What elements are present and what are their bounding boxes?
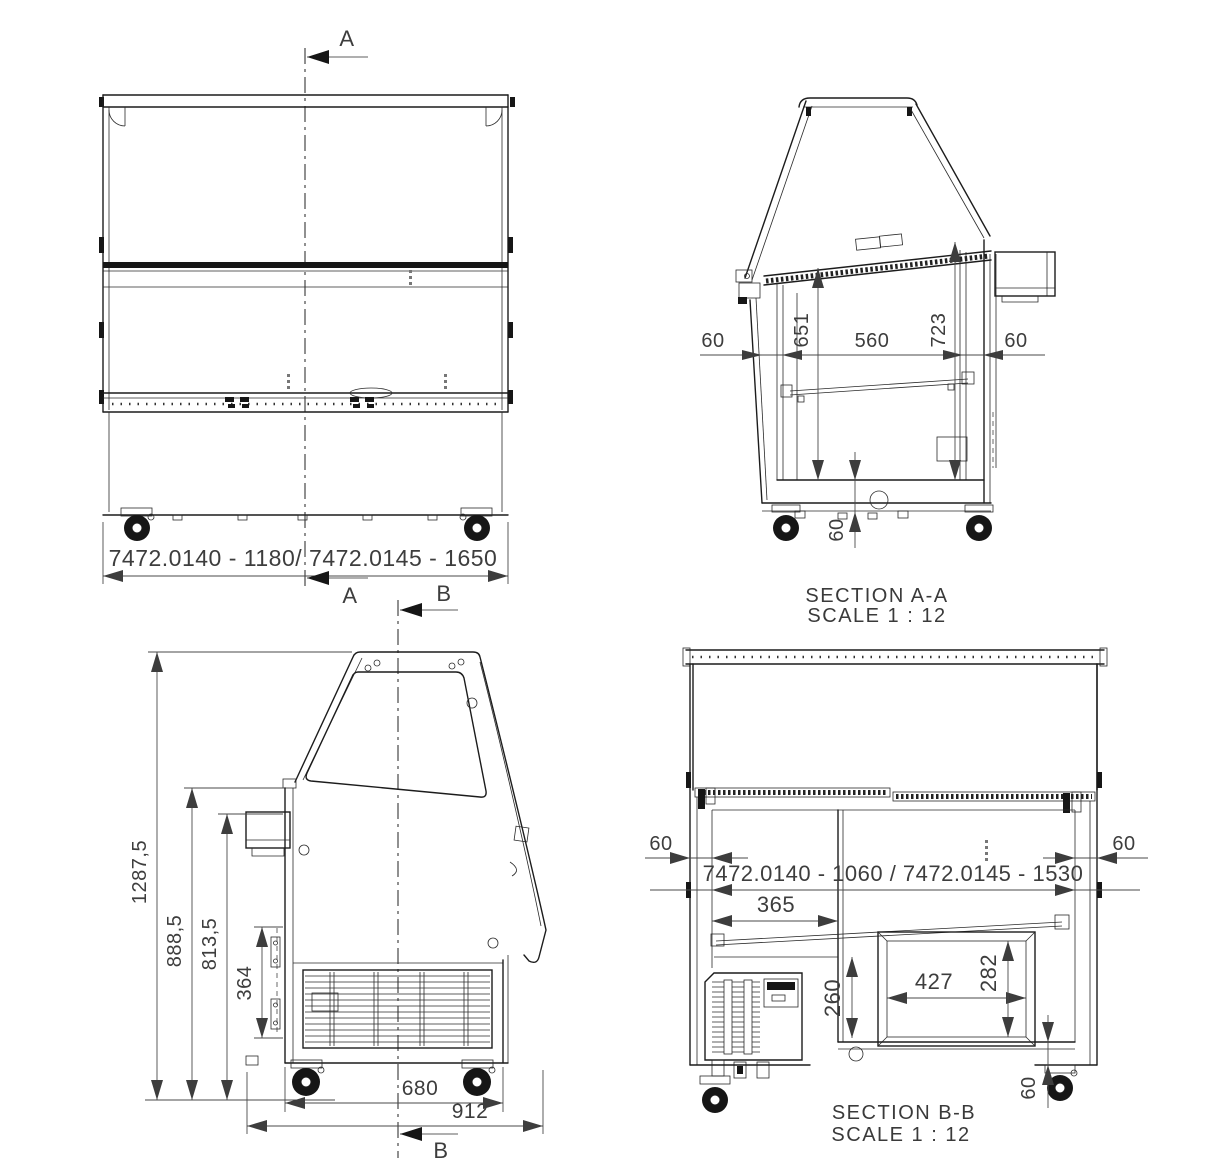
dim-bb-inner-width: 7472.0140 - 1060 / 7472.0145 - 1530	[703, 861, 1084, 886]
dim-bb-282: 282	[976, 954, 1001, 992]
dim-bb-365: 365	[757, 892, 795, 917]
caster-aa-left	[772, 505, 800, 541]
caster-side-right	[462, 1060, 495, 1096]
section-label-b-bottom: B	[433, 1138, 448, 1163]
dim-aa-left-60: 60	[701, 330, 724, 352]
dim-side-813: 813,5	[199, 918, 221, 971]
front-view: A	[99, 26, 515, 617]
dim-aa-723: 723	[928, 313, 950, 348]
dim-bb-left-60: 60	[649, 833, 672, 855]
section-aa-view: 60 560 60 651 723 60 SECTION A-A SCALE 1…	[700, 98, 1055, 627]
corner-bracket-left	[109, 107, 125, 126]
dim-side-680: 680	[402, 1077, 439, 1100]
hinge-strips	[271, 928, 280, 1036]
dim-side-912: 912	[452, 1100, 489, 1123]
section-bb-title: SECTION B-B	[832, 1102, 976, 1124]
caster-front-right	[460, 508, 492, 541]
caster-front-left	[121, 508, 154, 541]
dim-side-888: 888,5	[164, 915, 186, 968]
rear-box	[995, 252, 1055, 302]
section-label-b-top: B	[436, 581, 451, 606]
section-arrow-a-top	[307, 50, 329, 64]
dim-aa-right-60: 60	[1004, 330, 1027, 352]
dim-bb-427: 427	[915, 969, 953, 994]
section-aa-title: SECTION A-A	[805, 585, 948, 607]
dim-aa-560: 560	[855, 330, 890, 352]
section-arrow-a-bottom	[307, 571, 329, 585]
dim-aa-bottom-60: 60	[826, 518, 848, 541]
section-label-a-top: A	[339, 26, 354, 51]
front-width-dimension: 7472.0140 - 1180/ 7472.0145 - 1650	[109, 545, 498, 571]
section-arrow-b-top	[400, 603, 422, 617]
section-aa-scale: SCALE 1 : 12	[807, 605, 946, 627]
section-bb-view: 60 60 7472.0140 - 1060 / 7472.0145 - 153…	[645, 648, 1148, 1146]
machine-opening	[878, 932, 1035, 1046]
section-label-a-bottom: A	[342, 583, 357, 608]
slider-rails	[695, 788, 1095, 813]
dim-side-364: 364	[234, 966, 256, 1001]
section-bb-scale: SCALE 1 : 12	[831, 1124, 970, 1146]
technical-drawing: A	[0, 0, 1214, 1163]
side-view: 1287,5 888,5 813,5 364 680 912	[129, 600, 546, 1163]
dim-bb-bottom-60: 60	[1018, 1076, 1040, 1099]
caster-aa-right	[965, 505, 993, 541]
caster-bb-left	[700, 1076, 730, 1113]
shelf-rails	[781, 372, 974, 402]
compressor-unit	[705, 973, 802, 1078]
hinge-glyphs	[225, 397, 374, 408]
dim-bb-right-60: 60	[1112, 833, 1135, 855]
side-box	[246, 812, 290, 856]
corner-bracket-right	[486, 107, 502, 126]
dim-aa-651: 651	[791, 313, 813, 348]
dim-side-1287: 1287,5	[129, 840, 151, 904]
section-arrow-b-bottom	[400, 1127, 422, 1141]
technical-drawing-page: A	[0, 0, 1214, 1163]
glass-window-cutout	[306, 672, 486, 797]
caster-side-left	[291, 1060, 324, 1096]
front-divider-band	[103, 262, 508, 268]
dim-bb-260: 260	[820, 979, 845, 1017]
